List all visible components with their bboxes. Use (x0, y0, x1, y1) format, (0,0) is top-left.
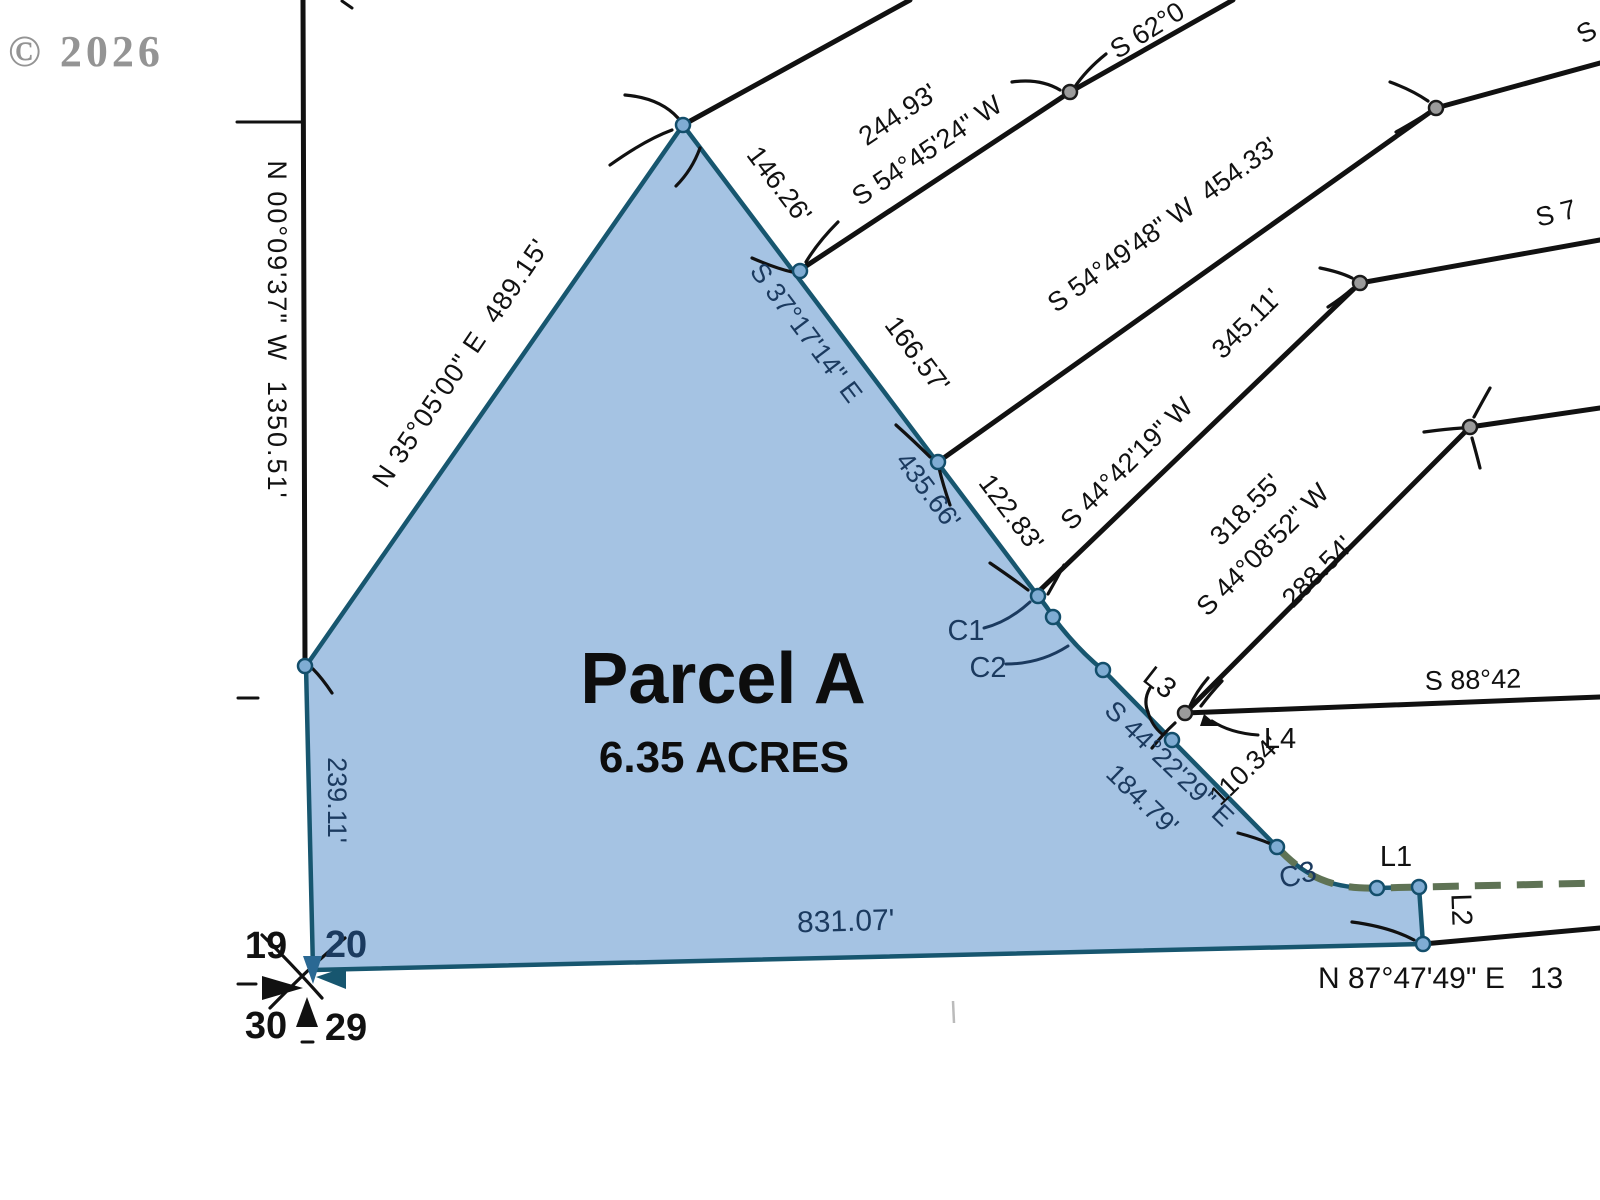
section-30-label: 30 (245, 1005, 287, 1047)
arc-v288-2 (1474, 388, 1490, 417)
arc-peak-1 (625, 95, 678, 118)
line-454-label: S 54°49'48" W 454.33' (1042, 131, 1284, 318)
line-288-ext (1470, 408, 1600, 427)
parcel-title: Parcel A (580, 639, 866, 719)
line-l1-label: L1 (1380, 841, 1412, 873)
line-l2-label: L2 (1444, 893, 1477, 926)
line-s7-label: S 7 (1533, 194, 1580, 233)
line-l3-label: L3 (1137, 660, 1182, 705)
copyright-watermark: © 2026 (8, 27, 164, 76)
arc-v244-leader-w (1012, 81, 1060, 90)
arc-v288-1 (1424, 428, 1462, 432)
line-244 (800, 92, 1070, 270)
stray-mark-bottom (953, 1001, 954, 1023)
l4-leader-arrowhead (1200, 714, 1218, 726)
line-454-ext (1436, 63, 1600, 108)
west-section-line (303, 0, 305, 666)
line-345-dist-label: 345.11' (1206, 283, 1288, 365)
arc-v454-2 (1396, 113, 1428, 132)
west-length-label: 239.11' (322, 757, 352, 843)
west-section-label: N 00°09'37" W 1350.51' (262, 160, 292, 499)
peak-north-line (683, 0, 910, 125)
section-29-label: 29 (325, 1007, 367, 1049)
south-length-label: 831.07' (797, 904, 895, 940)
corner-arrow-up-icon (296, 997, 318, 1027)
line-345 (1036, 283, 1360, 594)
arc-v288-3 (1472, 438, 1480, 468)
line-l4-label: L4 (1264, 723, 1296, 755)
south-adjoiner-line (1423, 928, 1600, 944)
line-s88 (1185, 697, 1600, 713)
line-345-bearing-label: S 44°42'19" W (1054, 391, 1199, 536)
section-19-label: 19 (245, 925, 287, 967)
arc-v345-1 (1320, 268, 1352, 278)
dashed-centerline (1277, 847, 1600, 888)
plat-map: © 2026 Parcel A 6.35 ACRES N 00°09'37" W… (0, 0, 1600, 1200)
curve-c2-label: C2 (969, 652, 1006, 684)
l4-leader (1212, 721, 1258, 735)
arc-v454-1 (1390, 82, 1428, 101)
seg2-label: 166.57' (879, 311, 956, 399)
line-s7 (1360, 240, 1600, 283)
stray-mark-top (342, 1, 352, 8)
parcel-area: 6.35 ACRES (599, 733, 849, 782)
line-s88-label: S 88°42 (1424, 663, 1521, 696)
south-line-label: N 87°47'49" E 13 (1318, 962, 1563, 995)
line-s-top-label: S (1571, 15, 1600, 50)
section-20-label: 20 (325, 924, 367, 966)
curve-c1-label: C1 (947, 615, 984, 647)
